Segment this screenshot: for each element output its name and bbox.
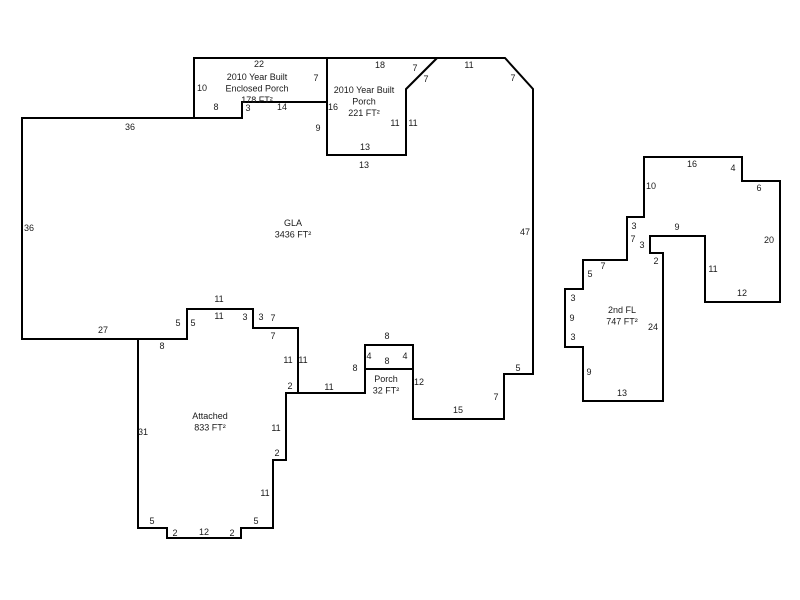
dimension-label: 8 <box>384 331 389 341</box>
dimension-label: 3 <box>258 312 263 322</box>
dimension-label: 36 <box>24 223 34 233</box>
dimension-label: 2 <box>287 381 292 391</box>
dimension-label: 11 <box>214 311 223 321</box>
dimension-label: 2 <box>229 528 234 538</box>
dimension-label: 6 <box>756 183 761 193</box>
dimension-label: 5 <box>175 318 180 328</box>
dimension-label: 31 <box>138 427 148 437</box>
dimension-label: 5 <box>190 318 195 328</box>
area-label-gla: 3436 FT² <box>275 230 312 240</box>
dimension-label: 7 <box>600 261 605 271</box>
area-label-year-built-porch: Porch <box>352 97 376 107</box>
dimension-label: 7 <box>412 63 417 73</box>
area-label-gla: GLA <box>284 218 302 228</box>
dimension-label: 11 <box>298 355 307 365</box>
dimension-label: 5 <box>587 269 592 279</box>
dimension-label: 11 <box>271 423 280 433</box>
dimension-label: 18 <box>375 60 385 70</box>
dimension-label: 16 <box>328 102 338 112</box>
dimension-label: 8 <box>159 341 164 351</box>
floorplan-sketch: GLA3436 FT²2010 Year BuiltEnclosed Porch… <box>0 0 800 600</box>
dimension-label: 5 <box>515 363 520 373</box>
dimension-label: 7 <box>510 73 515 83</box>
dimension-label: 8 <box>213 102 218 112</box>
dimension-label: 7 <box>423 74 428 84</box>
dimension-label: 4 <box>730 163 735 173</box>
dimension-label: 8 <box>352 363 357 373</box>
dimension-label: 11 <box>408 118 417 128</box>
area-label-year-built-porch: 221 FT² <box>348 108 380 118</box>
dimension-label: 5 <box>253 516 258 526</box>
dimension-label: 2 <box>274 448 279 458</box>
dimension-label: 11 <box>324 382 333 392</box>
dimension-label: 4 <box>366 351 371 361</box>
area-label-year-built-porch: 2010 Year Built <box>334 85 395 95</box>
dimension-label: 7 <box>270 331 275 341</box>
dimension-label: 3 <box>570 332 575 342</box>
dimension-label: 11 <box>260 488 269 498</box>
dimension-label: 12 <box>199 527 209 537</box>
dimension-label: 5 <box>149 516 154 526</box>
floorplan-canvas: GLA3436 FT²2010 Year BuiltEnclosed Porch… <box>0 0 800 600</box>
floorplan-shape-second-floor <box>565 157 780 401</box>
dimension-label: 9 <box>569 313 574 323</box>
dimension-label: 9 <box>674 222 679 232</box>
dimension-label: 11 <box>464 60 473 70</box>
area-label-enclosed-porch: 2010 Year Built <box>227 72 288 82</box>
dimension-label: 3 <box>245 103 250 113</box>
dimension-label: 3 <box>242 312 247 322</box>
dimension-label: 10 <box>646 181 656 191</box>
dimension-label: 36 <box>125 122 135 132</box>
area-label-porch-32: Porch <box>374 374 398 384</box>
dimension-label: 10 <box>197 83 207 93</box>
area-label-attached-garage: Attached <box>192 411 228 421</box>
area-label-attached-garage: 833 FT² <box>194 423 226 433</box>
dimension-label: 11 <box>708 264 717 274</box>
area-label-second-floor: 747 FT² <box>606 317 638 327</box>
dimension-label: 11 <box>283 355 292 365</box>
area-label-enclosed-porch: Enclosed Porch <box>225 84 288 94</box>
area-label-second-floor: 2nd FL <box>608 305 636 315</box>
dimension-label: 9 <box>586 367 591 377</box>
dimension-label: 7 <box>270 313 275 323</box>
dimension-label: 8 <box>384 356 389 366</box>
dimension-label: 15 <box>453 405 463 415</box>
dimension-label: 3 <box>570 293 575 303</box>
dimension-label: 13 <box>617 388 627 398</box>
dimension-label: 20 <box>764 235 774 245</box>
dimension-label: 13 <box>359 160 369 170</box>
dimension-label: 7 <box>630 234 635 244</box>
dimension-label: 3 <box>639 240 644 250</box>
dimension-label: 4 <box>402 351 407 361</box>
dimension-label: 11 <box>214 294 223 304</box>
dimension-label: 27 <box>98 325 108 335</box>
dimension-label: 13 <box>360 142 370 152</box>
dimension-label: 14 <box>277 102 287 112</box>
dimension-label: 24 <box>648 322 658 332</box>
dimension-label: 22 <box>254 59 264 69</box>
dimension-label: 2 <box>172 528 177 538</box>
area-label-porch-32: 32 FT² <box>373 386 400 396</box>
dimension-label: 16 <box>687 159 697 169</box>
dimension-label: 7 <box>493 392 498 402</box>
dimension-label: 12 <box>737 288 747 298</box>
dimension-label: 7 <box>313 73 318 83</box>
dimension-label: 11 <box>390 118 399 128</box>
dimension-label: 12 <box>414 377 424 387</box>
dimension-label: 9 <box>315 123 320 133</box>
dimension-label: 47 <box>520 227 530 237</box>
dimension-label: 3 <box>631 221 636 231</box>
dimension-label: 2 <box>653 256 658 266</box>
